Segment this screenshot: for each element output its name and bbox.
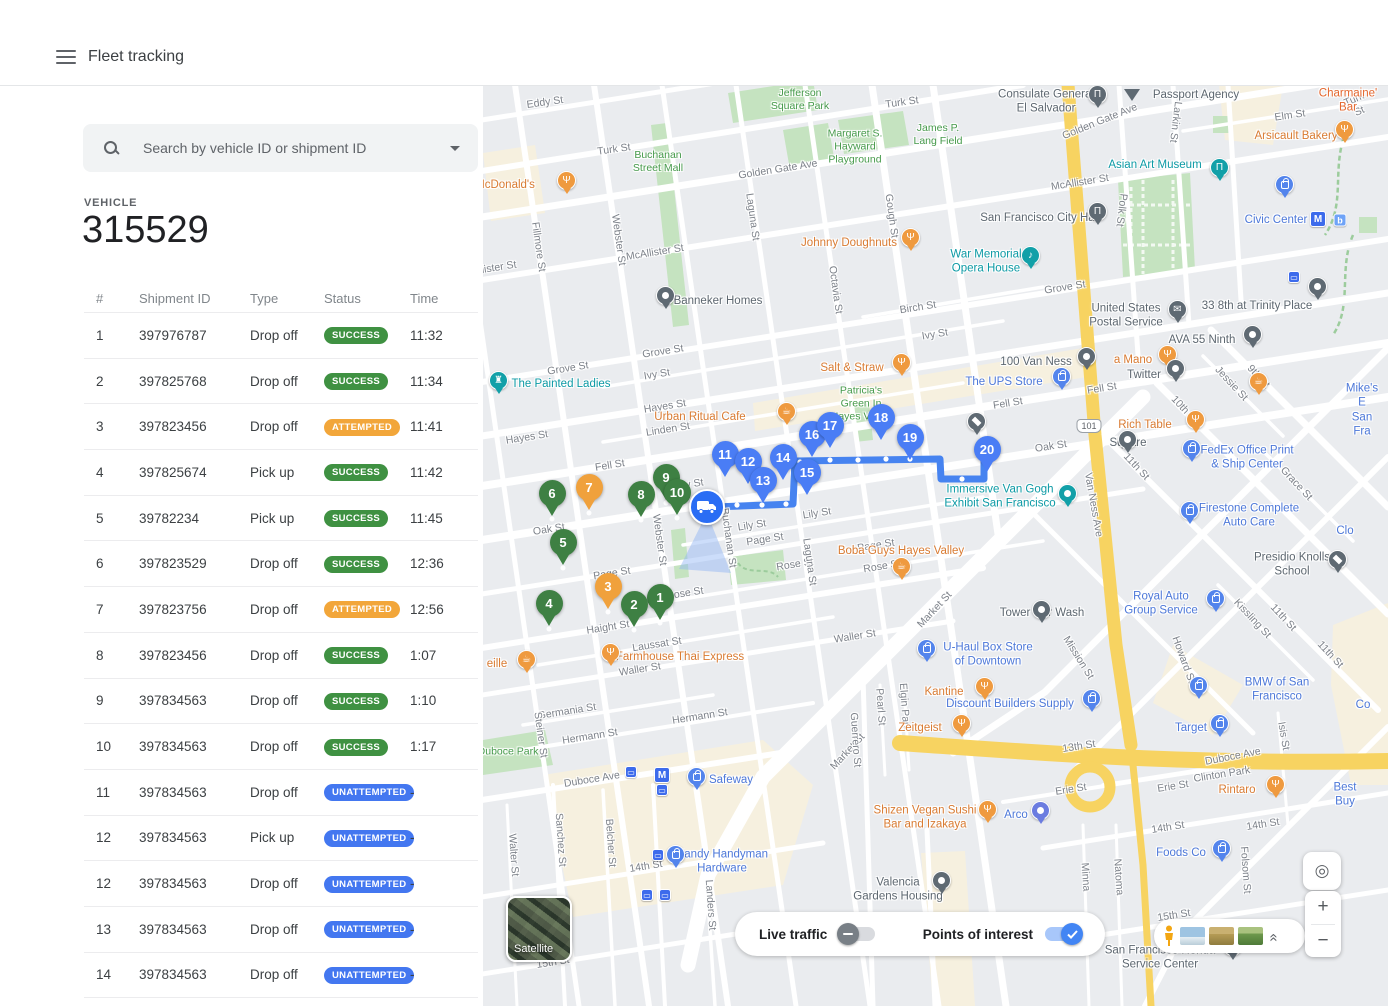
live-traffic-toggle[interactable] (839, 927, 875, 941)
stop-marker-17[interactable]: 17 (816, 412, 844, 448)
time-cell: 1:07 (410, 648, 478, 663)
status-badge: SUCCESS (324, 327, 388, 344)
num-cell: 6 (96, 556, 139, 571)
stop-marker-20[interactable]: 20 (973, 436, 1001, 472)
zoom-out-button[interactable]: − (1305, 925, 1341, 958)
shipment-row[interactable]: 13397834563Drop offUNATTEMPTED- (84, 907, 478, 953)
shipments-table: #Shipment IDTypeStatusTime 1397976787Dro… (84, 285, 478, 998)
safeway-pin[interactable] (687, 767, 707, 793)
zoom-control: + − (1305, 891, 1341, 957)
boba-guys-pin[interactable]: ☕ (892, 557, 912, 583)
points-of-interest-toggle[interactable] (1045, 927, 1081, 941)
search-input[interactable]: Search by vehicle ID or shipment ID (83, 124, 478, 172)
column-header: Status (324, 291, 410, 306)
rintaro-pin[interactable]: Ψ (1266, 775, 1286, 801)
ava-55-ninth-pin[interactable] (1243, 325, 1263, 351)
time-cell: - (410, 876, 478, 891)
shipment-id-cell: 397823756 (139, 602, 250, 617)
my-location-button[interactable]: ◎ (1303, 852, 1341, 890)
toggle-off-icon (837, 923, 859, 945)
ups-store-pin[interactable] (1052, 367, 1072, 393)
page-title: Fleet tracking (88, 48, 184, 66)
column-header: Type (250, 291, 324, 306)
usps-pin[interactable]: ✉ (1168, 300, 1188, 326)
time-cell: - (410, 967, 478, 982)
status-badge: SUCCESS (324, 464, 388, 481)
type-cell: Drop off (250, 556, 324, 571)
live-traffic-label: Live traffic (759, 927, 827, 942)
time-cell: 11:32 (410, 328, 478, 343)
map-canvas[interactable]: Eddy StTurk StTurk StTurk StElm StGolden… (483, 85, 1388, 1006)
arco-pin[interactable] (1031, 801, 1051, 827)
shipment-id-cell: 397834563 (139, 922, 250, 937)
sidebar: Search by vehicle ID or shipment ID VEHI… (0, 87, 483, 1006)
shipment-id-cell: 397823456 (139, 648, 250, 663)
status-badge: SUCCESS (324, 373, 388, 390)
time-cell: 11:34 (410, 374, 478, 389)
type-cell: Drop off (250, 785, 324, 800)
status-badge: UNATTEMPTED (324, 830, 414, 847)
type-cell: Drop off (250, 876, 324, 891)
menu-icon[interactable] (56, 50, 76, 64)
stop-ground-dot (606, 610, 611, 615)
johnny-doughnuts-pin[interactable]: Ψ (901, 228, 921, 254)
satellite-label: Satellite (514, 943, 553, 955)
time-cell: 11:45 (410, 511, 478, 526)
basemap (483, 85, 1388, 1006)
shipment-row[interactable]: 10397834563Drop offSUCCESS1:17 (84, 724, 478, 770)
marseille-pin[interactable]: ☕ (517, 650, 537, 676)
shopping-cart-pin[interactable] (1275, 175, 1295, 201)
imagery-thumbnail[interactable] (1238, 927, 1263, 945)
stop-ground-dot (550, 517, 555, 522)
shipment-row[interactable]: 4397825674Pick upSUCCESS11:42 (84, 450, 478, 496)
transit-stop-icon[interactable]: ▭ (1288, 271, 1300, 283)
status-badge: SUCCESS (324, 739, 388, 756)
stop-marker-7[interactable]: 7 (575, 474, 603, 510)
num-cell: 11 (96, 785, 139, 800)
imagery-thumbnail[interactable] (1209, 927, 1234, 945)
shizen-sushi-pin[interactable]: Ψ (978, 800, 998, 826)
shipment-id-cell: 397834563 (139, 967, 250, 982)
num-cell: 7 (96, 602, 139, 617)
type-cell: Drop off (250, 602, 324, 617)
shipment-id-cell: 397834563 (139, 693, 250, 708)
stop-marker-3[interactable]: 3 (594, 573, 622, 609)
trinity-place-pin[interactable] (1308, 277, 1328, 303)
shipment-row[interactable]: 7397823756Drop offATTEMPTED12:56 (84, 587, 478, 633)
shipment-row[interactable]: 1397976787Drop offSUCCESS11:32 (84, 313, 478, 359)
num-cell: 13 (96, 922, 139, 937)
search-placeholder: Search by vehicle ID or shipment ID (143, 140, 450, 156)
shipment-row[interactable]: 9397834563Drop offSUCCESS1:10 (84, 679, 478, 725)
status-badge: SUCCESS (324, 693, 388, 710)
shipment-row[interactable]: 3397823456Drop offATTEMPTED11:41 (84, 404, 478, 450)
time-cell: - (410, 785, 478, 800)
pegman-icon[interactable] (1162, 925, 1176, 947)
type-cell: Drop off (250, 693, 324, 708)
mcdonalds-pin[interactable]: Ψ (557, 171, 577, 197)
transit-stop-icon[interactable]: ▭ (656, 784, 668, 796)
time-cell: 11:42 (410, 465, 478, 480)
type-cell: Drop off (250, 967, 324, 982)
status-badge: ATTEMPTED (324, 601, 400, 618)
metro-station-icon[interactable]: M (1310, 211, 1326, 227)
city-hall-pin[interactable]: Π (1088, 202, 1108, 228)
shipment-row[interactable]: 2397825768Drop offSUCCESS11:34 (84, 359, 478, 405)
bmw-pin[interactable] (1189, 676, 1209, 702)
column-header: # (96, 291, 139, 306)
stop-ground-dot (587, 511, 592, 516)
num-cell: 14 (96, 967, 139, 982)
shipment-id-cell: 397823456 (139, 419, 250, 434)
vehicle-id: 315529 (82, 209, 209, 252)
num-cell: 3 (96, 419, 139, 434)
transit-stop-icon[interactable]: ▭ (625, 766, 637, 778)
stop-ground-dot (547, 627, 552, 632)
toggle-check-icon (1061, 923, 1083, 945)
shipment-row[interactable]: 12397834563Pick upUNATTEMPTED- (84, 816, 478, 862)
num-cell: 12 (96, 876, 139, 891)
column-header: Shipment ID (139, 291, 250, 306)
handy-handyman-pin[interactable] (666, 845, 686, 871)
discount-builders-pin[interactable] (1082, 689, 1102, 715)
consulate-pin[interactable]: Π (1088, 85, 1108, 111)
shipment-id-cell: 39782234 (139, 511, 250, 526)
presidio-knolls-pin[interactable] (1328, 550, 1348, 576)
truck-icon (697, 500, 717, 514)
type-cell: Drop off (250, 922, 324, 937)
shipment-id-cell: 397834563 (139, 876, 250, 891)
status-badge: UNATTEMPTED (324, 921, 414, 938)
passport-agency-pin[interactable] (1124, 89, 1140, 101)
shipment-row[interactable]: 8397823456Drop offSUCCESS1:07 (84, 633, 478, 679)
type-cell: Drop off (250, 328, 324, 343)
stop-ground-dot (632, 628, 637, 633)
time-cell: 1:10 (410, 693, 478, 708)
top-app-bar: Fleet tracking (0, 0, 1388, 86)
imagery-thumbnail[interactable] (1180, 927, 1205, 945)
stop-marker-4[interactable]: 4 (535, 590, 563, 626)
num-cell: 8 (96, 648, 139, 663)
status-badge: SUCCESS (324, 510, 388, 527)
stop-marker-5[interactable]: 5 (549, 529, 577, 565)
type-cell: Drop off (250, 739, 324, 754)
time-cell: 12:36 (410, 556, 478, 571)
search-icon (103, 140, 119, 156)
stop-ground-dot (658, 621, 663, 626)
stop-ground-dot (639, 518, 644, 523)
num-cell: 4 (96, 465, 139, 480)
chevron-down-icon[interactable] (450, 146, 460, 151)
stop-marker-10[interactable]: 10 (663, 479, 691, 515)
tower-car-wash-pin[interactable] (1032, 600, 1052, 626)
zoom-in-button[interactable]: + (1305, 891, 1341, 924)
urban-ritual-cafe-pin[interactable]: ☕ (777, 402, 797, 428)
shipment-id-cell: 397823529 (139, 556, 250, 571)
type-cell: Drop off (250, 419, 324, 434)
status-badge: UNATTEMPTED (324, 876, 414, 893)
war-memorial-pin[interactable]: ♪ (1021, 246, 1041, 272)
painted-ladies-pin[interactable]: ♜ (489, 371, 509, 397)
shipment-row[interactable]: 12397834563Drop offUNATTEMPTED- (84, 861, 478, 907)
time-cell: - (410, 830, 478, 845)
shipment-id-cell: 397825674 (139, 465, 250, 480)
firestone-pin[interactable] (1180, 501, 1200, 527)
status-badge: ATTEMPTED (324, 419, 400, 436)
type-cell: Pick up (250, 830, 324, 845)
target-pin[interactable] (1210, 714, 1230, 740)
shipment-id-cell: 397976787 (139, 328, 250, 343)
foods-co-pin[interactable] (1212, 839, 1232, 865)
status-badge: UNATTEMPTED (324, 967, 414, 984)
stop-marker-2[interactable]: 2 (620, 591, 648, 627)
status-badge: SUCCESS (324, 556, 388, 573)
salt-straw-pin[interactable]: Ψ (892, 353, 912, 379)
num-cell: 10 (96, 739, 139, 754)
uhaul-pin[interactable] (917, 639, 937, 665)
shipment-id-cell: 397834563 (139, 830, 250, 845)
asian-art-museum-pin[interactable]: Π (1210, 158, 1230, 184)
num-cell: 1 (96, 328, 139, 343)
transit-stop-icon[interactable]: ▭ (652, 849, 664, 861)
type-cell: Drop off (250, 648, 324, 663)
van-gogh-pin[interactable] (1058, 484, 1078, 510)
status-badge: SUCCESS (324, 647, 388, 664)
stop-marker-15[interactable]: 15 (793, 459, 821, 495)
vehicle-label: VEHICLE (84, 197, 137, 209)
num-cell: 5 (96, 511, 139, 526)
metro-station-icon[interactable]: M (654, 767, 670, 783)
shipment-id-cell: 397834563 (139, 785, 250, 800)
shipment-id-cell: 397834563 (139, 739, 250, 754)
satellite-layer-button[interactable]: Satellite (506, 896, 572, 962)
rich-table-pin[interactable]: Ψ (1186, 410, 1206, 436)
patricias-cafe-pin[interactable]: ☕ (1249, 372, 1269, 398)
farmhouse-thai-pin[interactable]: Ψ (601, 643, 621, 669)
time-cell: - (410, 922, 478, 937)
transit-stop-icon[interactable]: ▭ (659, 889, 671, 901)
royal-auto-pin[interactable] (1206, 589, 1226, 615)
square-pin[interactable] (1118, 430, 1138, 456)
map-toggle-bar: Live traffic Points of interest (735, 912, 1105, 956)
column-header: Time (410, 291, 478, 306)
num-cell: 2 (96, 374, 139, 389)
num-cell: 9 (96, 693, 139, 708)
shipment-row[interactable]: 539782234Pick upSUCCESS11:45 (84, 496, 478, 542)
stop-ground-dot (675, 516, 680, 521)
shipment-row[interactable]: 6397823529Drop offSUCCESS12:36 (84, 541, 478, 587)
twitter-pin[interactable] (1166, 359, 1186, 385)
time-cell: 1:17 (410, 739, 478, 754)
type-cell: Drop off (250, 374, 324, 389)
stop-marker-19[interactable]: 19 (896, 424, 924, 460)
num-cell: 12 (96, 830, 139, 845)
stop-marker-1[interactable]: 1 (646, 584, 674, 620)
type-cell: Pick up (250, 511, 324, 526)
stop-marker-18[interactable]: 18 (867, 404, 895, 440)
stop-marker-8[interactable]: 8 (627, 481, 655, 517)
bus-stop-icon[interactable]: b (1334, 214, 1347, 227)
banneker-homes-pin[interactable] (656, 286, 676, 312)
stop-marker-6[interactable]: 6 (538, 480, 566, 516)
type-cell: Pick up (250, 465, 324, 480)
fedex-pin[interactable] (1182, 439, 1202, 465)
route-101-shield: 101 (1076, 419, 1101, 433)
zeitgeist-pin[interactable]: Ψ (952, 714, 972, 740)
valencia-gardens-pin[interactable] (932, 871, 952, 897)
arsicault-bakery-pin[interactable]: Ψ (1335, 120, 1355, 146)
collapse-icon[interactable]: « (1266, 933, 1283, 939)
shipment-row[interactable]: 11397834563Drop offUNATTEMPTED- (84, 770, 478, 816)
hundred-van-ness-pin[interactable] (1077, 347, 1097, 373)
school-pin[interactable] (967, 412, 987, 438)
time-cell: 12:56 (410, 602, 478, 617)
stop-ground-dot (561, 566, 566, 571)
vehicle-marker[interactable] (689, 489, 725, 525)
time-cell: 11:41 (410, 419, 478, 434)
points-of-interest-label: Points of interest (923, 927, 1033, 942)
shipment-row[interactable]: 14397834563Drop offUNATTEMPTED- (84, 953, 478, 999)
street-view-bar: « (1154, 919, 1305, 953)
transit-stop-icon[interactable]: ▭ (641, 889, 653, 901)
kantine-pin[interactable]: Ψ (975, 677, 995, 703)
shipment-id-cell: 397825768 (139, 374, 250, 389)
table-header: #Shipment IDTypeStatusTime (84, 285, 478, 313)
status-badge: UNATTEMPTED (324, 784, 414, 801)
